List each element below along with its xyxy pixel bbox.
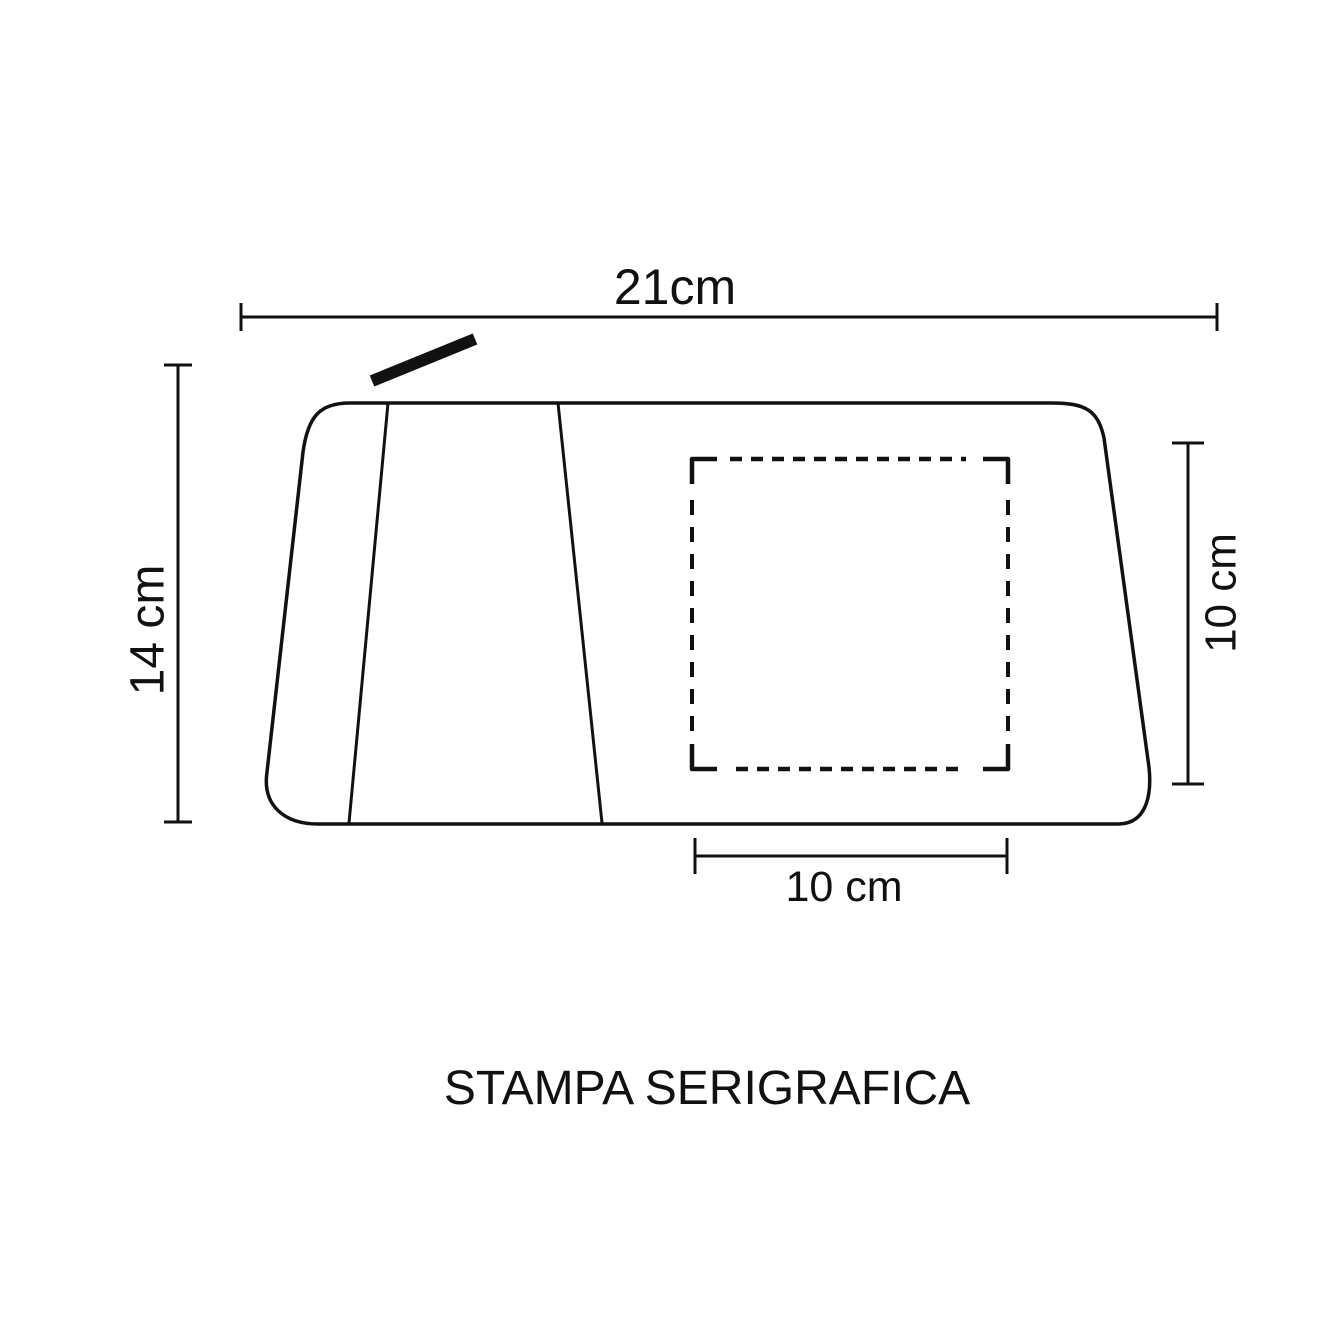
print-area-bracket-bottom-left <box>692 744 717 769</box>
seam-line-right <box>558 403 602 823</box>
diagram-page: 21cm 14 cm 10 cm 10 cm STAMPA SERIGRAFIC… <box>0 0 1333 1337</box>
zipper-pull-icon <box>372 339 475 381</box>
print-area-height-label: 10 cm <box>1197 533 1246 653</box>
stroke-group <box>164 303 1217 874</box>
overall-height-label: 14 cm <box>122 565 175 696</box>
print-area-bracket-bottom-right <box>983 744 1008 769</box>
label-group: 21cm 14 cm 10 cm 10 cm STAMPA SERIGRAFIC… <box>122 259 1246 1115</box>
technical-drawing-canvas: 21cm 14 cm 10 cm 10 cm STAMPA SERIGRAFIC… <box>0 0 1333 1337</box>
diagram-caption: STAMPA SERIGRAFICA <box>444 1062 970 1115</box>
pouch-outline <box>266 403 1149 824</box>
print-area-bracket-top-left <box>692 459 717 484</box>
overall-width-label: 21cm <box>614 259 736 315</box>
print-area-bracket-top-right <box>983 459 1008 484</box>
seam-line-left <box>349 403 388 823</box>
print-area-width-label: 10 cm <box>785 863 902 911</box>
